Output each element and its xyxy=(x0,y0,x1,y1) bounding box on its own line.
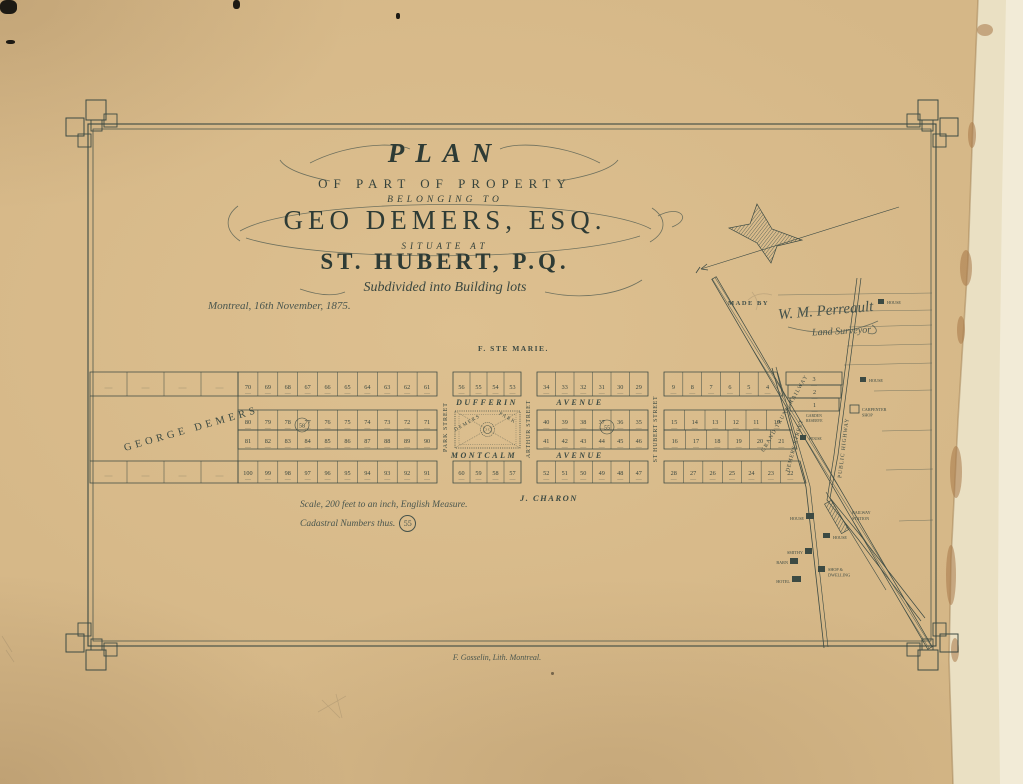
lot-number: 9 xyxy=(672,384,675,391)
montcalm-avenue-label-w: MONTCALM xyxy=(450,451,517,460)
lot-number: 86 xyxy=(344,438,350,445)
lot-number: 96 xyxy=(324,470,330,477)
lot-number: 14 xyxy=(692,419,698,426)
lot-number: 45 xyxy=(617,438,623,445)
shop-dwelling-label-2: DWELLING xyxy=(828,573,850,578)
house-label: HOUSE xyxy=(809,437,822,441)
lot-number: 100 xyxy=(243,470,252,477)
lot-number: 73 xyxy=(384,419,390,426)
lot-number: 64 xyxy=(364,384,370,391)
house-icon xyxy=(878,299,884,304)
lot-number: 51 xyxy=(562,470,568,477)
owner-name: GEO DEMERS, ESQ. xyxy=(170,205,720,236)
lot-number: 48 xyxy=(617,470,623,477)
lot-number: 89 xyxy=(404,438,410,445)
st-hubert-street-label: ST HUBERT STREET xyxy=(653,396,659,463)
lot-number: 77 xyxy=(305,419,311,426)
lot-number: 83 xyxy=(285,438,291,445)
lot-number: 62 xyxy=(404,384,410,391)
lot-number: 19 xyxy=(736,438,742,445)
lot-number: 13 xyxy=(712,419,718,426)
owner-block-outline xyxy=(90,396,238,461)
made-by-label: MADE BY xyxy=(728,300,769,307)
cadastral-example-circle: 55 xyxy=(399,515,416,532)
lot-number: 71 xyxy=(424,419,430,426)
lot-number: 38 xyxy=(580,419,586,426)
george-demers-block-label: GEORGE DEMERS xyxy=(123,405,260,454)
lot-number: 76 xyxy=(324,419,330,426)
lot-number: 87 xyxy=(364,438,370,445)
lot-number: 53 xyxy=(509,384,515,391)
lot-number: 75 xyxy=(344,419,350,426)
park-label-park: PARK xyxy=(498,412,517,426)
lot-number: 5 xyxy=(747,384,750,391)
lot-number: 49 xyxy=(599,470,605,477)
barn-label: BARN xyxy=(776,560,788,565)
lot-number: 97 xyxy=(305,470,311,477)
lot-number: 21 xyxy=(778,438,784,445)
paper-speck xyxy=(6,40,15,44)
lot-number: 74 xyxy=(364,419,370,426)
lot-number: 50 xyxy=(580,470,586,477)
lot-number: 4 xyxy=(766,384,769,391)
lot-number: 36 xyxy=(617,419,623,426)
lot-number: 24 xyxy=(748,470,754,477)
barn-icon xyxy=(790,558,798,564)
lot-number: 63 xyxy=(384,384,390,391)
hotel-icon xyxy=(792,576,801,582)
garden-reserve-label-2: RESERVE xyxy=(806,419,823,423)
lot-number: 79 xyxy=(265,419,271,426)
railway-station-label-2: STATION xyxy=(852,516,869,521)
lot-number: 58 xyxy=(492,470,498,477)
pencil-scribble xyxy=(2,636,346,718)
lot-number: 66 xyxy=(324,384,330,391)
lot-number: 1 xyxy=(813,402,816,409)
garden-reserve-label-1: GARDEN xyxy=(806,414,822,418)
house-icon xyxy=(800,435,806,440)
lot-number: 65 xyxy=(344,384,350,391)
lot-number: 26 xyxy=(709,470,715,477)
lot-number: 81 xyxy=(245,438,251,445)
lot-number: 52 xyxy=(543,470,549,477)
montcalm-avenue-label-e: AVENUE xyxy=(555,451,603,460)
lot-number: 33 xyxy=(562,384,568,391)
lot-number: 17 xyxy=(693,438,699,445)
lot-number: 57 xyxy=(509,470,515,477)
paper-speck xyxy=(0,0,17,14)
house-label: HOUSE xyxy=(790,516,804,521)
lot-number: 91 xyxy=(424,470,430,477)
lot-number: 78 xyxy=(285,419,291,426)
lot-number: 23 xyxy=(768,470,774,477)
title-line-2: OF PART OF PROPERTY xyxy=(170,176,720,192)
demers-street-road xyxy=(772,367,828,648)
lot-number: 88 xyxy=(384,438,390,445)
hotel-label: HOTEL xyxy=(776,579,790,584)
shop-dwelling-label-1: SHOP & xyxy=(828,567,844,572)
lot-number: 42 xyxy=(562,438,568,445)
lot-number: 28 xyxy=(671,470,677,477)
public-highway-label: PUBLIC HIGHWAY xyxy=(837,417,850,478)
cadastral-number-block-d: 55 xyxy=(604,426,610,432)
shop-dwelling-icon xyxy=(818,566,825,572)
lot-number: 93 xyxy=(384,470,390,477)
park-label-demers: DEMERS xyxy=(454,414,482,433)
lot-number: 98 xyxy=(285,470,291,477)
cadastral-note-text: Cadastral Numbers thus. xyxy=(300,519,395,529)
house-icon xyxy=(823,533,830,538)
lot-number: 6 xyxy=(728,384,731,391)
house-icon xyxy=(860,377,866,382)
cadastral-number-block-b: 58 xyxy=(299,424,305,430)
paper-speck xyxy=(396,13,400,19)
lot-number: 18 xyxy=(714,438,720,445)
paper-speck xyxy=(551,672,554,675)
lot-number: 43 xyxy=(580,438,586,445)
lot-number: 70 xyxy=(245,384,251,391)
lot-number: 61 xyxy=(424,384,430,391)
demers-park: DEMERS PARK xyxy=(454,411,520,448)
lot-number: 84 xyxy=(305,438,311,445)
carpenter-shop-icon xyxy=(850,405,859,413)
lot-number: 39 xyxy=(562,419,568,426)
demers-street-label: DEMERS STREET xyxy=(785,419,805,473)
subtitle: Subdivided into Building lots xyxy=(170,280,720,296)
lot-number: 25 xyxy=(729,470,735,477)
lot-number: 11 xyxy=(753,419,759,426)
carpenter-shop-label-1: CARPENTER xyxy=(862,407,887,412)
house-label: HOUSE xyxy=(887,300,901,305)
lot-number: 72 xyxy=(404,419,410,426)
arthur-street-label: ARTHUR STREET xyxy=(526,400,532,458)
lot-number: 30 xyxy=(617,384,623,391)
park-street-label: PARK STREET xyxy=(443,402,449,452)
lot-number: 90 xyxy=(424,438,430,445)
lot-number: 60 xyxy=(458,470,464,477)
lot-number: 31 xyxy=(599,384,605,391)
lot-number: 8 xyxy=(691,384,694,391)
lot-number: 47 xyxy=(636,470,642,477)
lot-number: 20 xyxy=(757,438,763,445)
carpenter-shop-label-2: SHOP xyxy=(862,413,873,418)
lot-number: 95 xyxy=(344,470,350,477)
place-name: ST. HUBERT, P.Q. xyxy=(170,249,720,275)
dufferin-avenue-label-w: DUFFERIN xyxy=(455,398,518,407)
railway-station-label-1: RAILWAY xyxy=(852,510,871,515)
dufferin-avenue-label-e: AVENUE xyxy=(555,398,603,407)
lot-number: 7 xyxy=(710,384,713,391)
lot-number: 85 xyxy=(324,438,330,445)
smithy-icon xyxy=(805,548,812,554)
lot-number: 12 xyxy=(733,419,739,426)
lot-number: 29 xyxy=(636,384,642,391)
cadastral-note: Cadastral Numbers thus.55 xyxy=(300,515,416,532)
lot-number: 99 xyxy=(265,470,271,477)
lot-number: 40 xyxy=(543,419,549,426)
map-sheet: 7069686766656463626180797877767574737271… xyxy=(0,0,1023,784)
lot-number: 94 xyxy=(364,470,370,477)
lot-number: 59 xyxy=(475,470,481,477)
adjoining-owner-south: J. CHARON xyxy=(520,493,578,503)
lot-number: 67 xyxy=(305,384,311,391)
lot-number: 44 xyxy=(599,438,605,445)
lot-number: 55 xyxy=(475,384,481,391)
title-line-3: BELONGING TO xyxy=(170,195,720,205)
lot-number: 46 xyxy=(636,438,642,445)
lot-number: 69 xyxy=(265,384,271,391)
map-title: PLAN xyxy=(170,138,720,169)
lot-number: 32 xyxy=(580,384,586,391)
lot-number: 2 xyxy=(813,389,816,396)
smithy-label: SMITHY xyxy=(787,550,803,555)
adjoining-owner-north: F. STE MARIE. xyxy=(478,344,549,353)
lot-number: 54 xyxy=(492,384,498,391)
lot-number: 34 xyxy=(543,384,549,391)
lot-number: 16 xyxy=(672,438,678,445)
lot-number: 56 xyxy=(458,384,464,391)
lot-number: 92 xyxy=(404,470,410,477)
scale-note: Scale, 200 feet to an inch, English Meas… xyxy=(300,500,467,510)
paper-speck xyxy=(233,0,240,9)
lot-number: 15 xyxy=(671,419,677,426)
house-label: HOUSE xyxy=(869,378,883,383)
lot-number: 35 xyxy=(636,419,642,426)
north-star-icon xyxy=(729,204,802,263)
lot-number: 68 xyxy=(285,384,291,391)
lot-number: 3 xyxy=(812,376,815,383)
lot-number: 41 xyxy=(543,438,549,445)
map-canvas: 7069686766656463626180797877767574737271… xyxy=(0,0,1023,784)
lot-number: 82 xyxy=(265,438,271,445)
date-line: Montreal, 16th November, 1875. xyxy=(208,300,351,312)
lithographer-credit: F. Gosselin, Lith. Montreal. xyxy=(417,653,577,662)
house-icon xyxy=(806,513,814,519)
lot-number: 80 xyxy=(245,419,251,426)
lot-number: 27 xyxy=(690,470,696,477)
house-label: HOUSE xyxy=(833,535,847,540)
